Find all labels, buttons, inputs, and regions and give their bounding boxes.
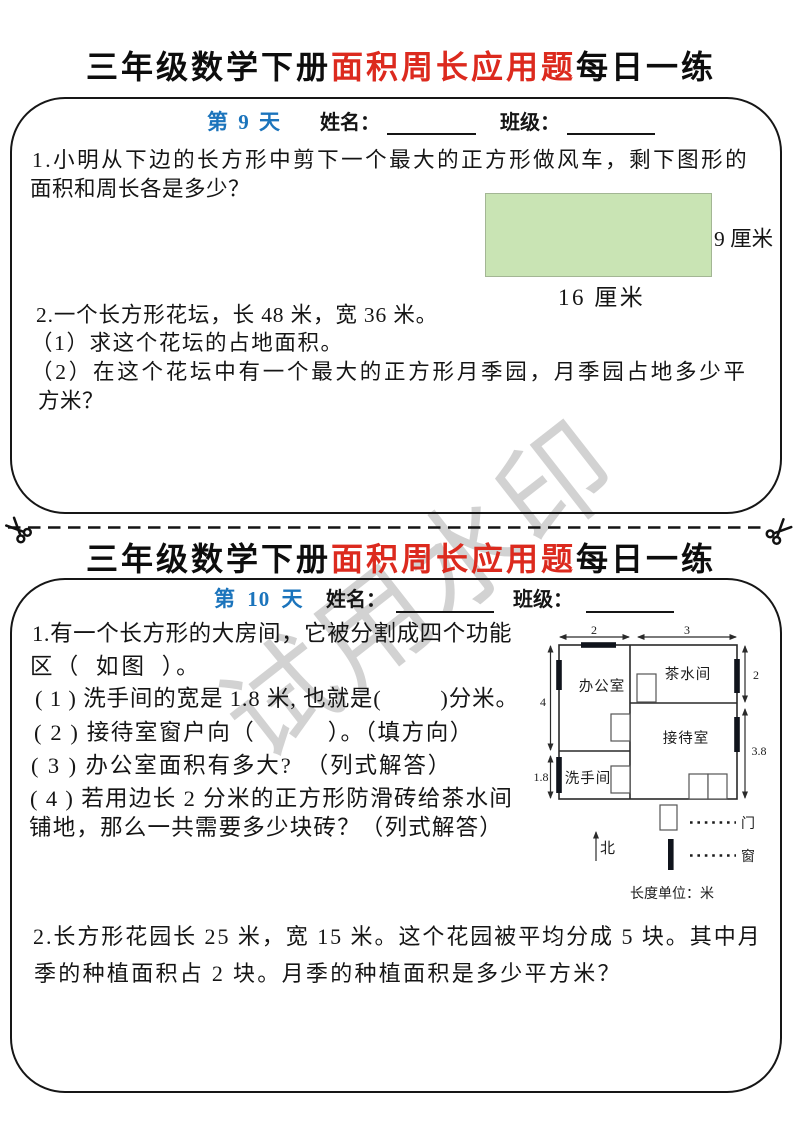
svg-text:北: 北 xyxy=(600,840,615,857)
svg-text:3.8: 3.8 xyxy=(752,744,767,758)
svg-text:长度单位：米: 长度单位：米 xyxy=(630,886,714,902)
svg-text:洗手间: 洗手间 xyxy=(565,770,612,787)
svg-text:窗: 窗 xyxy=(741,848,755,865)
svg-text:2: 2 xyxy=(591,623,597,637)
svg-text:门: 门 xyxy=(741,816,755,832)
svg-text:办公室: 办公室 xyxy=(579,678,626,695)
svg-text:1.8: 1.8 xyxy=(534,770,549,784)
svg-text:3: 3 xyxy=(684,623,690,637)
svg-text:茶水间: 茶水间 xyxy=(665,666,712,683)
svg-text:4: 4 xyxy=(540,695,546,709)
svg-text:接待室: 接待室 xyxy=(663,730,710,747)
svg-text:2: 2 xyxy=(753,668,759,682)
